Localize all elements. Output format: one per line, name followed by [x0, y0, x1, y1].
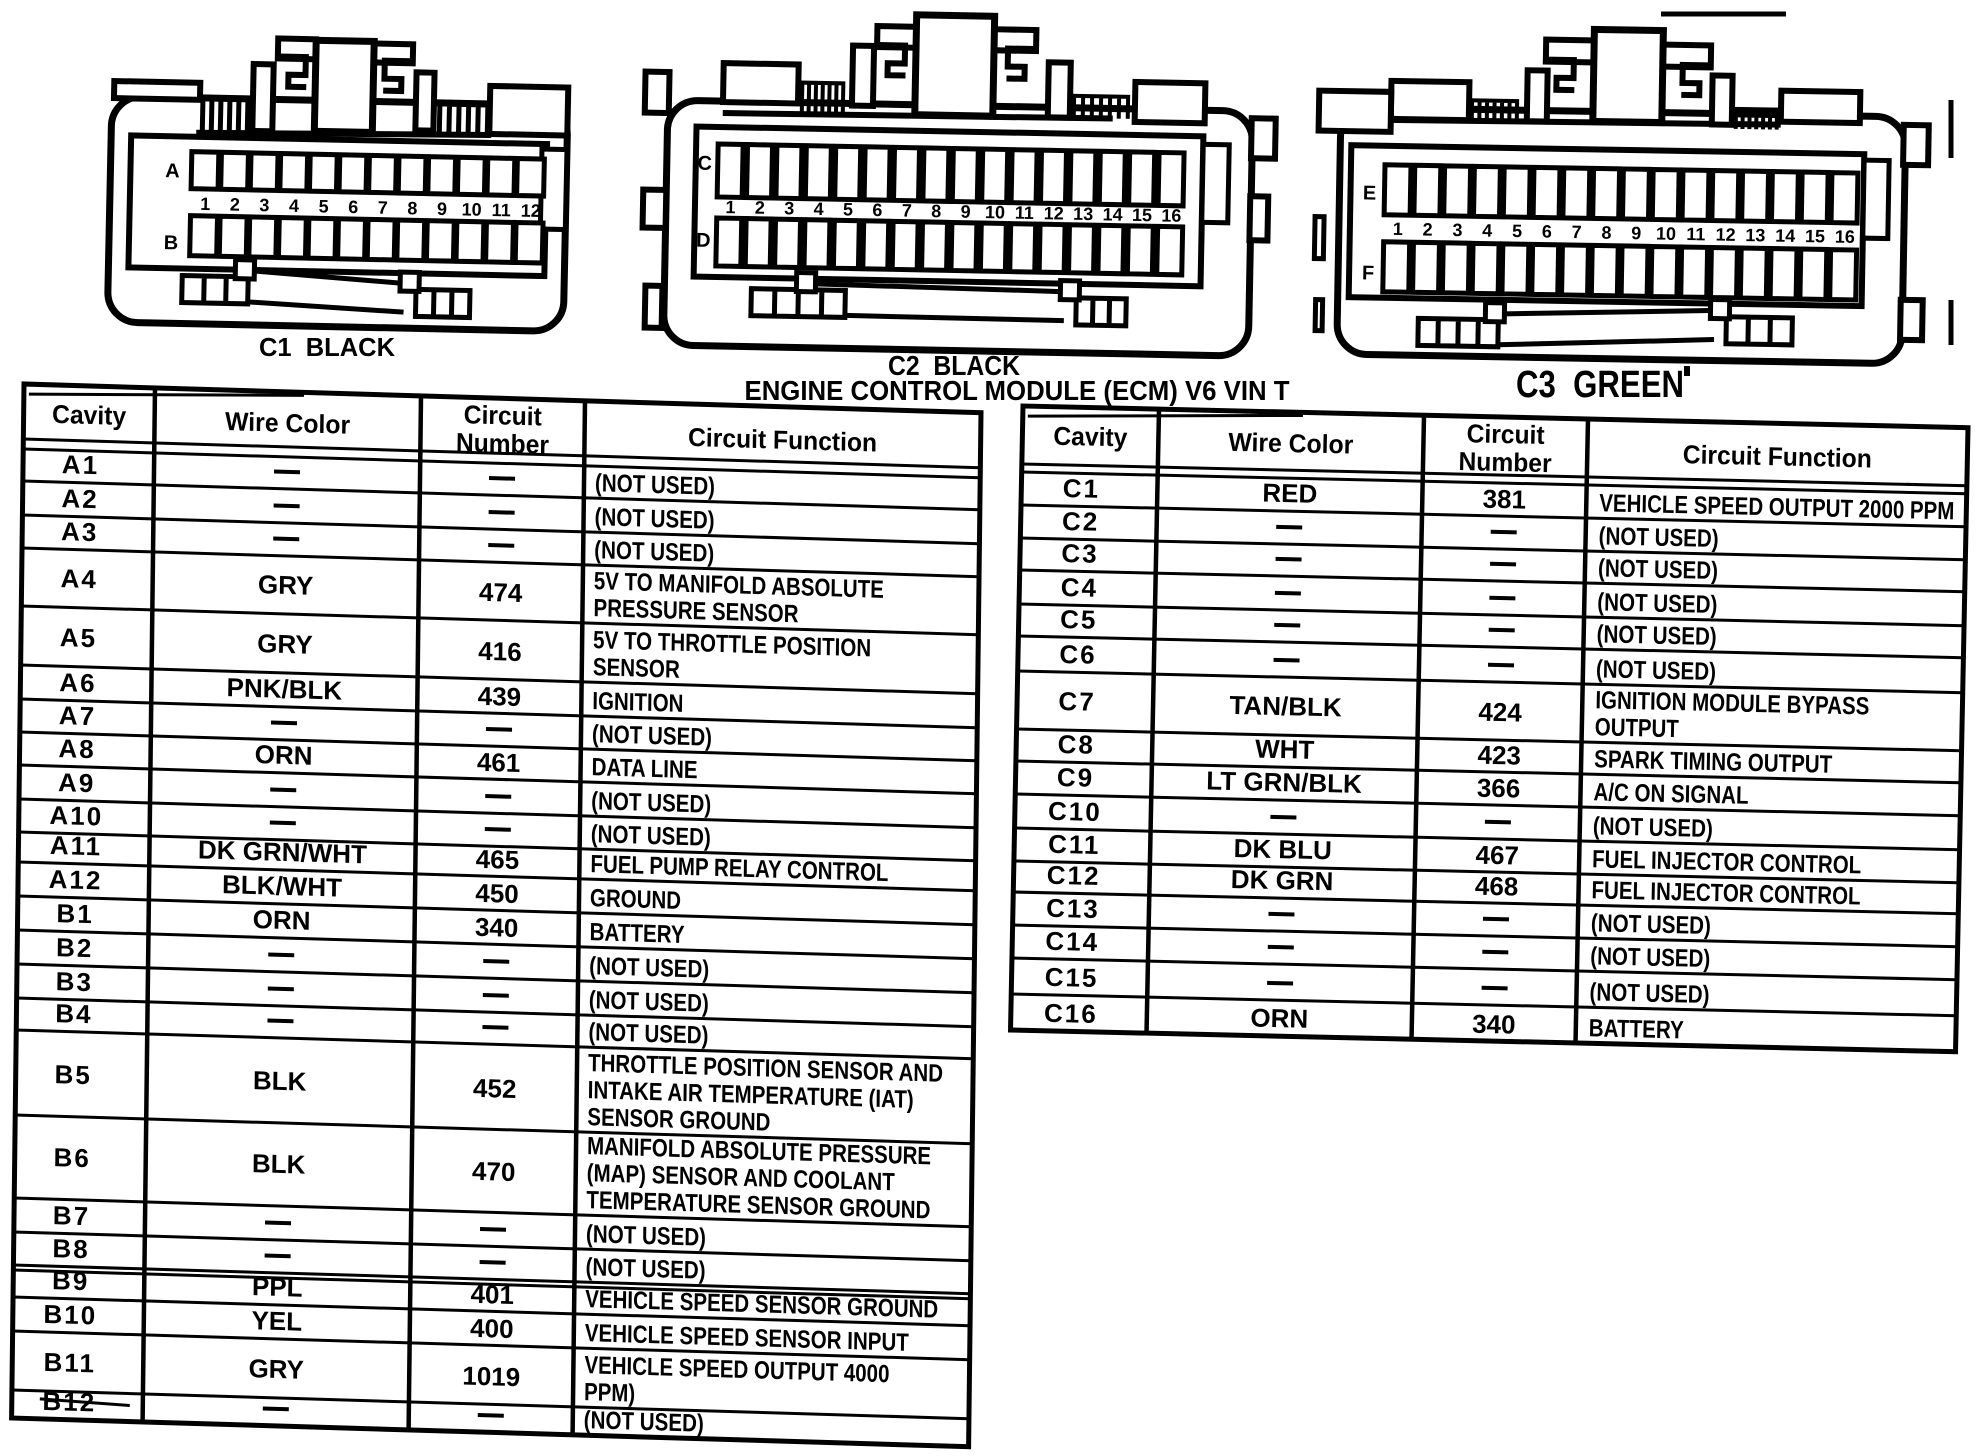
- svg-text:(NOT USED): (NOT USED): [1597, 588, 1718, 619]
- svg-text:10: 10: [985, 202, 1005, 222]
- svg-text:6: 6: [348, 197, 358, 217]
- svg-text:7: 7: [378, 198, 388, 218]
- svg-text:C1: C1: [1062, 473, 1100, 504]
- svg-text:B3: B3: [56, 966, 94, 997]
- svg-text:13: 13: [1073, 204, 1093, 224]
- svg-text:B5: B5: [54, 1059, 92, 1090]
- svg-text:(NOT USED): (NOT USED): [1596, 620, 1717, 651]
- svg-text:423: 423: [1477, 740, 1521, 771]
- svg-text:Cavity: Cavity: [1053, 421, 1128, 453]
- svg-text:A9: A9: [58, 767, 96, 798]
- svg-text:(NOT USED): (NOT USED): [1598, 554, 1719, 585]
- svg-text:15: 15: [1805, 226, 1825, 246]
- svg-text:11: 11: [491, 200, 510, 220]
- svg-text:(NOT USED): (NOT USED): [1598, 522, 1719, 553]
- svg-text:A10: A10: [49, 800, 103, 832]
- svg-text:GRY: GRY: [258, 569, 314, 601]
- svg-text:(NOT USED): (NOT USED): [1591, 909, 1712, 940]
- svg-text:340: 340: [1472, 1009, 1516, 1040]
- svg-text:16: 16: [1161, 205, 1181, 225]
- svg-text:BLK: BLK: [253, 1065, 307, 1097]
- svg-text:11: 11: [1015, 203, 1034, 223]
- svg-text:C3 GREEN: C3 GREEN: [1516, 364, 1684, 406]
- svg-text:BATTERY: BATTERY: [589, 918, 685, 949]
- svg-text:4: 4: [1482, 220, 1492, 240]
- svg-text:340: 340: [475, 912, 519, 943]
- svg-text:(NOT USED): (NOT USED): [589, 952, 709, 984]
- svg-text:C16: C16: [1044, 998, 1098, 1029]
- svg-text:9: 9: [1631, 223, 1641, 243]
- svg-text:ORN: ORN: [1250, 1003, 1308, 1034]
- svg-text:DK BLU: DK BLU: [1233, 833, 1332, 865]
- svg-text:12: 12: [1044, 203, 1064, 223]
- svg-text:YEL: YEL: [251, 1305, 302, 1337]
- svg-text:(NOT USED): (NOT USED): [585, 1253, 705, 1285]
- svg-text:A8: A8: [58, 733, 96, 764]
- svg-text:13: 13: [1745, 225, 1765, 245]
- svg-text:C13: C13: [1046, 893, 1100, 924]
- svg-text:A/C ON SIGNAL: A/C ON SIGNAL: [1593, 778, 1749, 810]
- svg-text:7: 7: [902, 201, 912, 221]
- svg-text:C12: C12: [1046, 860, 1100, 891]
- svg-text:3: 3: [784, 198, 794, 218]
- svg-text:A6: A6: [59, 667, 97, 698]
- svg-text:2: 2: [1422, 219, 1432, 239]
- svg-text:8: 8: [931, 201, 941, 221]
- svg-text:PNK/BLK: PNK/BLK: [226, 672, 342, 705]
- svg-text:Wire Color: Wire Color: [1228, 427, 1354, 460]
- svg-text:400: 400: [470, 1313, 514, 1344]
- svg-text:B7: B7: [53, 1200, 91, 1231]
- svg-text:5: 5: [843, 199, 853, 219]
- svg-text:C10: C10: [1048, 796, 1102, 827]
- svg-text:(NOT USED): (NOT USED): [1596, 655, 1717, 686]
- svg-text:(NOT USED): (NOT USED): [594, 503, 714, 535]
- svg-text:Cavity: Cavity: [52, 399, 127, 431]
- svg-text:15: 15: [1132, 205, 1152, 225]
- svg-text:461: 461: [477, 747, 521, 778]
- svg-text:B1: B1: [56, 898, 94, 929]
- svg-text:BLK/WHT: BLK/WHT: [222, 869, 342, 903]
- svg-text:3: 3: [1452, 220, 1462, 240]
- svg-text:439: 439: [478, 681, 522, 712]
- svg-text:GRY: GRY: [257, 628, 313, 660]
- svg-text:(NOT USED): (NOT USED): [589, 986, 709, 1018]
- svg-text:1019: 1019: [462, 1361, 520, 1393]
- svg-text:366: 366: [1477, 773, 1521, 804]
- svg-text:470: 470: [472, 1156, 516, 1187]
- svg-text:A7: A7: [59, 700, 97, 731]
- svg-text:2: 2: [230, 194, 240, 214]
- svg-text:ENGINE CONTROL MODULE (ECM) V6: ENGINE CONTROL MODULE (ECM) V6 VIN T: [745, 375, 1290, 406]
- svg-text:1: 1: [200, 194, 210, 214]
- svg-text:5: 5: [1512, 221, 1522, 241]
- svg-text:(NOT USED): (NOT USED): [594, 536, 714, 568]
- svg-text:E: E: [1363, 182, 1377, 204]
- svg-text:WHT: WHT: [1255, 734, 1315, 765]
- svg-text:(NOT USED): (NOT USED): [1590, 942, 1711, 973]
- svg-text:6: 6: [1542, 222, 1552, 242]
- svg-text:16: 16: [1835, 227, 1855, 247]
- svg-text:A2: A2: [61, 483, 99, 514]
- svg-text:A11: A11: [50, 830, 103, 862]
- svg-text:A4: A4: [60, 563, 98, 594]
- svg-text:4: 4: [289, 196, 299, 216]
- svg-text:Circuit: Circuit: [1466, 418, 1545, 450]
- svg-text:C11: C11: [1048, 829, 1101, 860]
- svg-text:BLK: BLK: [252, 1148, 306, 1180]
- svg-text:ORN: ORN: [253, 904, 311, 936]
- svg-text:C9: C9: [1057, 762, 1095, 793]
- svg-text:6: 6: [872, 200, 882, 220]
- svg-text:C: C: [697, 153, 712, 175]
- svg-text:RED: RED: [1262, 478, 1317, 509]
- svg-text:C2: C2: [1062, 506, 1100, 537]
- svg-text:1: 1: [725, 197, 735, 217]
- svg-text:474: 474: [479, 577, 523, 608]
- svg-text:A5: A5: [60, 622, 98, 653]
- svg-text:C15: C15: [1044, 962, 1098, 993]
- svg-text:A12: A12: [49, 864, 103, 896]
- svg-text:C3: C3: [1061, 538, 1099, 569]
- svg-text:DK GRN: DK GRN: [1231, 864, 1334, 896]
- svg-text:B2: B2: [56, 932, 94, 963]
- svg-text:B6: B6: [53, 1142, 91, 1173]
- svg-text:10: 10: [1656, 224, 1676, 244]
- svg-text:11: 11: [1686, 224, 1705, 244]
- svg-text:GROUND: GROUND: [590, 884, 681, 915]
- svg-text:DK GRN/WHT: DK GRN/WHT: [198, 834, 367, 869]
- svg-text:A: A: [165, 160, 180, 182]
- svg-text:ORN: ORN: [255, 739, 313, 771]
- svg-text:VEHICLE SPEED SENSOR INPUT: VEHICLE SPEED SENSOR INPUT: [585, 1319, 909, 1357]
- svg-text:Circuit Function: Circuit Function: [1683, 439, 1873, 473]
- svg-text:(NOT USED): (NOT USED): [592, 720, 712, 752]
- svg-text:B: B: [163, 232, 178, 254]
- svg-text:7: 7: [1571, 222, 1581, 242]
- svg-text:467: 467: [1475, 840, 1519, 871]
- svg-text:12: 12: [521, 201, 541, 221]
- svg-text:C14: C14: [1045, 926, 1099, 957]
- svg-text:TAN/BLK: TAN/BLK: [1229, 690, 1342, 723]
- svg-text:(NOT USED): (NOT USED): [591, 787, 711, 819]
- svg-text:A1: A1: [62, 449, 100, 480]
- svg-text:8: 8: [407, 198, 417, 218]
- svg-text:C5: C5: [1060, 604, 1098, 635]
- svg-text:C6: C6: [1059, 639, 1097, 670]
- svg-text:PPM): PPM): [584, 1378, 635, 1408]
- svg-text:452: 452: [473, 1073, 517, 1104]
- svg-text:424: 424: [1478, 697, 1523, 728]
- svg-text:OUTPUT: OUTPUT: [1595, 713, 1680, 743]
- svg-text:3: 3: [259, 195, 269, 215]
- svg-text:(NOT USED): (NOT USED): [595, 469, 715, 501]
- svg-text:(NOT USED): (NOT USED): [586, 1220, 706, 1252]
- svg-text:450: 450: [475, 878, 519, 909]
- svg-text:B10: B10: [43, 1299, 97, 1331]
- svg-text:C1 BLACK: C1 BLACK: [259, 332, 395, 362]
- svg-text:10: 10: [461, 199, 481, 219]
- svg-text:2: 2: [755, 198, 765, 218]
- svg-text:BATTERY: BATTERY: [1589, 1014, 1685, 1044]
- svg-text:416: 416: [478, 636, 522, 667]
- svg-text:12: 12: [1715, 225, 1735, 245]
- svg-text:9: 9: [437, 199, 447, 219]
- svg-text:4: 4: [813, 199, 823, 219]
- svg-text:SENSOR: SENSOR: [593, 653, 680, 684]
- svg-text:(NOT USED): (NOT USED): [584, 1406, 704, 1438]
- svg-text:(NOT USED): (NOT USED): [588, 1018, 708, 1050]
- svg-text:C8: C8: [1057, 729, 1095, 760]
- svg-text:Circuit Function: Circuit Function: [688, 422, 877, 458]
- svg-text:9: 9: [960, 202, 970, 222]
- svg-text:(NOT USED): (NOT USED): [591, 820, 711, 852]
- svg-text:381: 381: [1482, 484, 1526, 515]
- svg-text:B11: B11: [43, 1347, 96, 1379]
- svg-text:14: 14: [1775, 226, 1795, 246]
- svg-text:C4: C4: [1060, 572, 1098, 603]
- svg-text:8: 8: [1601, 223, 1611, 243]
- svg-text:DATA LINE: DATA LINE: [591, 753, 697, 784]
- svg-text:1: 1: [1393, 219, 1403, 239]
- svg-text:465: 465: [476, 844, 520, 875]
- svg-text:A3: A3: [61, 516, 99, 547]
- svg-text:5: 5: [318, 196, 328, 216]
- svg-text:Wire Color: Wire Color: [225, 406, 350, 440]
- svg-text:F: F: [1362, 262, 1375, 284]
- svg-text:GRY: GRY: [248, 1353, 304, 1385]
- svg-text:B8: B8: [52, 1233, 90, 1264]
- svg-text:B4: B4: [55, 998, 93, 1029]
- svg-text:(NOT USED): (NOT USED): [1589, 978, 1710, 1009]
- svg-text:(NOT USED): (NOT USED): [1593, 812, 1714, 843]
- svg-text:D: D: [696, 230, 711, 252]
- svg-text:468: 468: [1475, 871, 1519, 902]
- svg-text:LT GRN/BLK: LT GRN/BLK: [1206, 765, 1362, 799]
- svg-text:C7: C7: [1058, 686, 1096, 717]
- svg-text:IGNITION: IGNITION: [592, 687, 683, 718]
- svg-text:14: 14: [1102, 204, 1122, 224]
